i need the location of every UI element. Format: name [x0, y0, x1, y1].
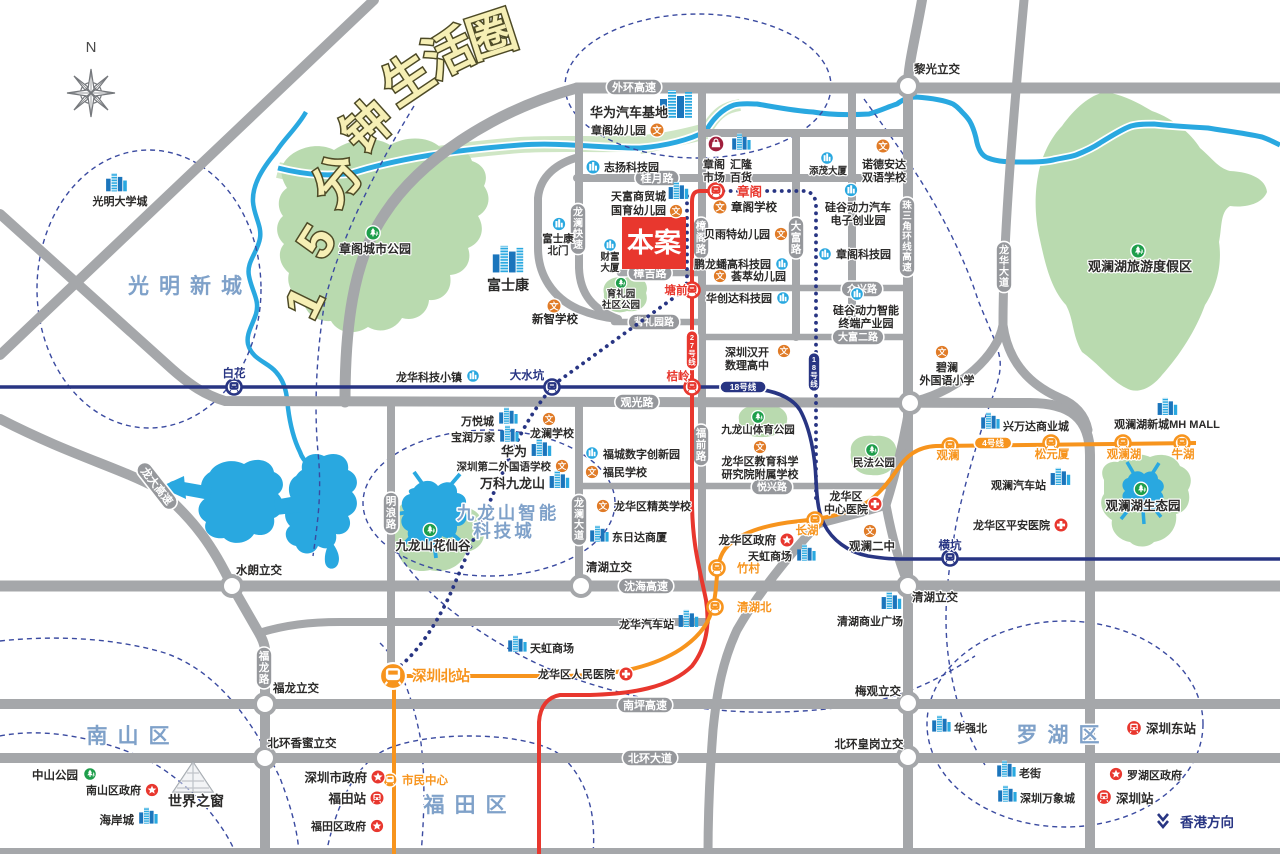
svg-text:龙澜学校: 龙澜学校	[529, 426, 575, 440]
svg-text:北门: 北门	[548, 244, 569, 257]
svg-text:市民中心: 市民中心	[402, 773, 448, 787]
svg-text:龙: 龙	[258, 661, 270, 674]
svg-text:线: 线	[902, 241, 912, 253]
svg-text:龙华区平安医院: 龙华区平安医院	[972, 518, 1050, 532]
svg-text:珠: 珠	[902, 200, 912, 212]
svg-text:观澜湖新城MH MALL: 观澜湖新城MH MALL	[1114, 417, 1220, 431]
svg-text:观澜: 观澜	[937, 448, 960, 462]
svg-text:桔岭: 桔岭	[667, 369, 690, 383]
svg-text:大厦: 大厦	[600, 262, 620, 274]
svg-text:快: 快	[572, 227, 584, 240]
svg-text:大富二路: 大富二路	[838, 331, 879, 344]
svg-text:龙: 龙	[998, 244, 1009, 257]
svg-text:深圳站: 深圳站	[1116, 791, 1154, 806]
svg-text:章阁城市公园: 章阁城市公园	[339, 241, 411, 256]
svg-text:速: 速	[573, 238, 583, 251]
svg-text:福田区: 福田区	[423, 794, 517, 817]
svg-text:福城数字创新园: 福城数字创新园	[602, 447, 680, 461]
svg-text:龙华区政府: 龙华区政府	[718, 533, 777, 547]
svg-text:老街: 老街	[1018, 766, 1041, 780]
svg-text:本案: 本案	[627, 227, 682, 258]
svg-text:光明新城: 光明新城	[127, 274, 252, 298]
svg-text:研究院附属学校: 研究院附属学校	[722, 467, 800, 481]
svg-text:华为汽车基地: 华为汽车基地	[590, 105, 668, 120]
svg-text:章阁: 章阁	[737, 184, 762, 199]
svg-text:北环皇岗立交: 北环皇岗立交	[835, 737, 904, 751]
svg-text:鹏龙蟠高科技园: 鹏龙蟠高科技园	[694, 257, 771, 271]
svg-text:福: 福	[695, 427, 707, 440]
svg-text:添茂大厦: 添茂大厦	[809, 165, 848, 177]
svg-text:深圳第二外国语学校: 深圳第二外国语学校	[457, 460, 552, 473]
svg-text:华为: 华为	[501, 444, 527, 459]
svg-text:北环香蜜立交: 北环香蜜立交	[268, 736, 337, 750]
svg-text:华强北: 华强北	[954, 721, 987, 735]
svg-text:观澜湖: 观澜湖	[1107, 447, 1142, 461]
svg-text:宝润万家: 宝润万家	[451, 430, 496, 444]
svg-text:松元厦: 松元厦	[1035, 447, 1070, 461]
svg-text:澜: 澜	[573, 216, 583, 229]
svg-text:悦兴路: 悦兴路	[757, 481, 788, 494]
svg-text:龙: 龙	[573, 497, 584, 510]
svg-text:碧澜: 碧澜	[935, 360, 958, 374]
svg-text:市场: 市场	[703, 170, 725, 184]
svg-text:万悦城: 万悦城	[460, 414, 494, 428]
svg-text:汇隆: 汇隆	[730, 157, 753, 171]
svg-text:天虹商场: 天虹商场	[530, 641, 574, 655]
svg-text:中心医院: 中心医院	[824, 502, 868, 516]
svg-text:硅谷动力智能: 硅谷动力智能	[833, 303, 899, 317]
svg-text:长湖: 长湖	[796, 523, 819, 537]
svg-text:中山公园: 中山公园	[32, 768, 78, 782]
svg-text:富: 富	[791, 231, 802, 244]
svg-text:章阁科技园: 章阁科技园	[836, 247, 891, 261]
svg-text:民法公园: 民法公园	[853, 456, 895, 469]
svg-text:清湖商业广场: 清湖商业广场	[837, 614, 903, 628]
svg-text:角: 角	[902, 220, 912, 232]
svg-text:清湖北: 清湖北	[737, 600, 772, 614]
svg-text:横坑: 横坑	[939, 538, 962, 552]
svg-text:国育幼儿园: 国育幼儿园	[611, 203, 666, 217]
svg-text:诺德安达: 诺德安达	[862, 157, 906, 171]
svg-text:清湖立交: 清湖立交	[912, 590, 958, 604]
svg-text:观澜湖旅游度假区: 观澜湖旅游度假区	[1088, 259, 1192, 274]
svg-text:线: 线	[810, 378, 818, 388]
svg-text:华: 华	[999, 254, 1009, 267]
svg-text:富士康: 富士康	[487, 277, 530, 293]
svg-text:牛湖: 牛湖	[1172, 447, 1195, 461]
svg-text:章阁学校: 章阁学校	[731, 200, 777, 214]
svg-text:清湖立交: 清湖立交	[586, 560, 632, 574]
svg-text:梅观立交: 梅观立交	[855, 684, 901, 698]
svg-text:线: 线	[688, 356, 696, 366]
svg-text:背礼园路: 背礼园路	[634, 316, 675, 329]
svg-text:4号线: 4号线	[982, 438, 1004, 448]
svg-text:澜: 澜	[574, 507, 584, 520]
svg-text:终端产业园: 终端产业园	[839, 316, 894, 330]
svg-text:章阁幼儿园: 章阁幼儿园	[591, 123, 646, 137]
svg-text:南山区政府: 南山区政府	[86, 783, 141, 797]
svg-text:硅谷动力汽车: 硅谷动力汽车	[825, 200, 891, 214]
svg-text:天富商贸城: 天富商贸城	[611, 189, 666, 203]
svg-text:科技城: 科技城	[473, 521, 535, 541]
svg-text:百货: 百货	[730, 170, 752, 184]
svg-text:世界之窗: 世界之窗	[168, 793, 224, 809]
svg-text:荟萃幼儿园: 荟萃幼儿园	[730, 269, 786, 283]
svg-text:大: 大	[791, 220, 802, 233]
svg-text:电子创业园: 电子创业园	[831, 213, 886, 227]
svg-text:东日达商厦: 东日达商厦	[612, 530, 668, 544]
svg-text:福: 福	[258, 650, 270, 663]
svg-text:路: 路	[696, 449, 707, 462]
svg-text:万科九龙山: 万科九龙山	[479, 476, 545, 491]
svg-text:大水坑: 大水坑	[510, 368, 545, 382]
svg-text:外环高速: 外环高速	[611, 80, 656, 94]
svg-text:龙华区教育科学: 龙华区教育科学	[721, 454, 799, 468]
svg-text:南山区: 南山区	[87, 724, 180, 748]
svg-text:兴万达商业城: 兴万达商业城	[1003, 419, 1069, 433]
svg-text:路: 路	[259, 672, 270, 685]
svg-text:深圳市政府: 深圳市政府	[304, 770, 367, 785]
svg-text:华创达科技园: 华创达科技园	[706, 291, 772, 305]
svg-text:福田站: 福田站	[327, 791, 366, 806]
svg-text:南坪高速: 南坪高速	[623, 698, 667, 712]
svg-text:深圳北站: 深圳北站	[412, 667, 470, 685]
svg-text:罗湖区: 罗湖区	[1017, 724, 1110, 747]
svg-text:观澜汽车站: 观澜汽车站	[991, 478, 1046, 492]
svg-text:新智学校: 新智学校	[532, 312, 578, 326]
svg-text:财富: 财富	[599, 251, 619, 263]
svg-text:路: 路	[696, 242, 707, 255]
svg-text:外国语小学: 外国语小学	[919, 373, 975, 387]
svg-text:贝雨特幼儿园: 贝雨特幼儿园	[704, 227, 770, 241]
svg-text:明: 明	[386, 496, 397, 508]
svg-text:社区公园: 社区公园	[601, 299, 640, 311]
svg-text:双语学校: 双语学校	[862, 170, 907, 184]
svg-text:深圳万象城: 深圳万象城	[1020, 791, 1075, 805]
svg-text:北环大道: 北环大道	[628, 751, 672, 765]
svg-text:育礼园: 育礼园	[607, 288, 636, 300]
svg-text:海岸城: 海岸城	[100, 813, 135, 827]
svg-text:龙华区: 龙华区	[829, 489, 863, 503]
svg-text:福龙立交: 福龙立交	[272, 681, 319, 695]
svg-text:深圳汉开: 深圳汉开	[725, 345, 769, 359]
svg-text:道: 道	[999, 276, 1009, 289]
svg-text:竹村: 竹村	[736, 561, 760, 575]
svg-text:数理高中: 数理高中	[725, 358, 769, 372]
svg-text:18号线: 18号线	[730, 382, 757, 392]
svg-text:大: 大	[999, 265, 1009, 278]
svg-text:章阁: 章阁	[703, 157, 725, 171]
svg-text:大: 大	[574, 518, 584, 531]
svg-text:路: 路	[386, 517, 397, 530]
svg-text:沈海高速: 沈海高速	[624, 579, 668, 593]
svg-text:九龙山花仙谷: 九龙山花仙谷	[394, 538, 471, 553]
svg-text:白花: 白花	[223, 366, 246, 380]
svg-text:观光路: 观光路	[621, 395, 655, 409]
svg-text:路: 路	[791, 242, 802, 255]
svg-text:浪: 浪	[386, 506, 397, 519]
svg-text:龙华区人民医院: 龙华区人民医院	[537, 667, 615, 681]
svg-text:塘前: 塘前	[665, 283, 688, 297]
svg-text:前: 前	[696, 438, 707, 451]
svg-text:龙: 龙	[572, 206, 583, 219]
svg-text:龙华汽车站: 龙华汽车站	[618, 617, 674, 631]
svg-text:福民学校: 福民学校	[602, 465, 648, 479]
svg-text:龙华区精英学校: 龙华区精英学校	[613, 499, 692, 513]
svg-text:罗湖区政府: 罗湖区政府	[1127, 768, 1182, 782]
svg-text:香港方向: 香港方向	[1179, 814, 1234, 830]
svg-text:黎光立交: 黎光立交	[914, 62, 960, 76]
svg-text:速: 速	[902, 262, 912, 274]
svg-text:志扬科技园: 志扬科技园	[604, 160, 659, 174]
svg-text:天虹商场: 天虹商场	[748, 549, 792, 563]
svg-text:观澜二中: 观澜二中	[849, 539, 895, 553]
svg-text:福田区政府: 福田区政府	[310, 819, 366, 833]
svg-text:富士康: 富士康	[542, 232, 574, 245]
svg-text:九龙山体育公园: 九龙山体育公园	[720, 423, 795, 436]
svg-text:水朗立交: 水朗立交	[236, 563, 282, 577]
svg-text:N: N	[86, 39, 97, 56]
svg-text:观澜湖生态园: 观澜湖生态园	[1105, 498, 1180, 513]
svg-text:龙华科技小镇: 龙华科技小镇	[395, 370, 462, 384]
svg-text:光明大学城: 光明大学城	[92, 194, 148, 208]
svg-text:九龙山智能: 九龙山智能	[456, 503, 560, 523]
svg-text:高: 高	[902, 251, 912, 263]
svg-text:深圳东站: 深圳东站	[1146, 721, 1197, 736]
svg-text:道: 道	[574, 529, 584, 542]
